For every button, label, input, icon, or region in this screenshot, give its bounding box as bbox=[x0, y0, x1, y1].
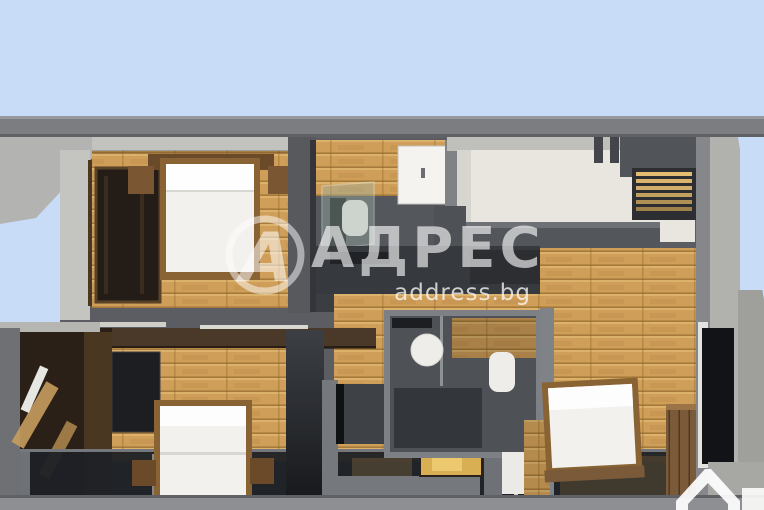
nightstand bbox=[128, 166, 154, 194]
sink-faucet bbox=[421, 168, 425, 178]
glass-pier bbox=[484, 452, 502, 502]
bed-pillows bbox=[160, 406, 246, 426]
floorplan-render: А АДРЕС address.bg bbox=[0, 0, 764, 510]
bed-sheet-fold bbox=[166, 190, 254, 192]
nightstand bbox=[132, 460, 156, 486]
wall-shadow bbox=[92, 150, 306, 153]
roof-beam bbox=[0, 116, 764, 138]
door-frame bbox=[610, 137, 619, 163]
window-right bbox=[702, 328, 734, 464]
house-logo-fragment bbox=[742, 488, 764, 510]
stair-step bbox=[636, 207, 692, 211]
stair-step bbox=[636, 193, 692, 197]
hall-closet-shadow bbox=[336, 384, 344, 444]
bottom-sill bbox=[0, 498, 764, 510]
bed-pillows bbox=[166, 164, 254, 190]
bed-pillows bbox=[548, 384, 633, 410]
bathroom-mirror bbox=[392, 318, 432, 328]
stair-step bbox=[636, 172, 692, 176]
toilet bbox=[489, 352, 515, 392]
floorplan-scene: А АДРЕС address.bg bbox=[0, 0, 764, 510]
bed-sheet-fold bbox=[160, 452, 246, 455]
bathroom-counter-shade bbox=[452, 318, 536, 358]
balcony-wall bbox=[0, 328, 20, 510]
left-wall-column bbox=[60, 150, 90, 320]
window-mullion bbox=[104, 176, 108, 294]
nightstand bbox=[250, 458, 274, 484]
divider-ledge bbox=[96, 322, 166, 327]
stair-step bbox=[636, 179, 692, 183]
wardrobe-dark bbox=[112, 352, 160, 432]
stair-step bbox=[636, 200, 692, 204]
divider-window-frame bbox=[200, 325, 308, 329]
watermark-domain-text: address.bg bbox=[394, 280, 531, 306]
right-wall bbox=[696, 137, 764, 510]
bathroom-dark-floor bbox=[394, 388, 482, 448]
dark-wall bbox=[286, 330, 324, 510]
watermark-brand-text: АДРЕС bbox=[311, 216, 545, 281]
bed-bottom-right bbox=[540, 377, 645, 482]
door-frame bbox=[594, 137, 603, 163]
bedroom-top-left-backwall bbox=[92, 137, 306, 151]
bottom-sill-shadow bbox=[0, 495, 764, 498]
round-sink bbox=[411, 334, 443, 366]
roof-beam-highlight bbox=[0, 116, 764, 119]
adres-logo-letter: А bbox=[235, 219, 297, 298]
stair-step bbox=[636, 186, 692, 190]
glass-pier bbox=[20, 452, 30, 502]
